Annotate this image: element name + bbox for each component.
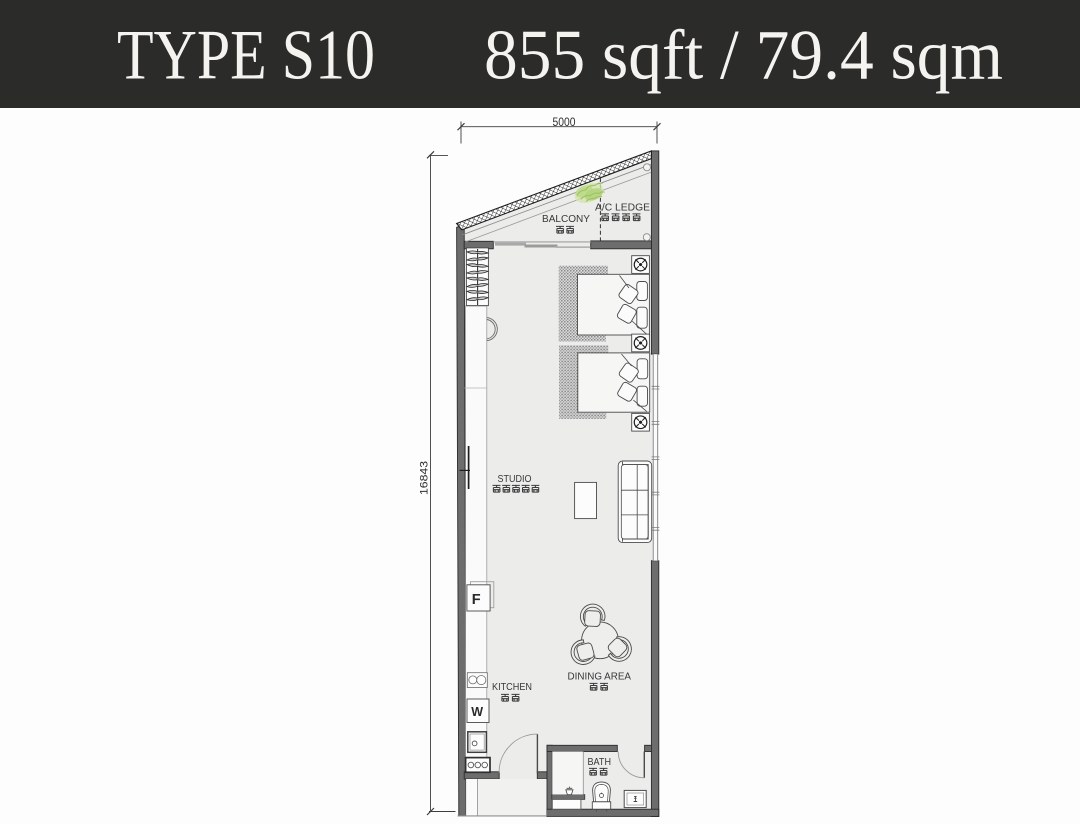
svg-text:16843: 16843	[419, 461, 431, 495]
svg-text:STUDIO: STUDIO	[498, 473, 532, 485]
svg-text:BALCONY: BALCONY	[542, 213, 590, 225]
svg-text:F: F	[472, 592, 481, 608]
svg-text:5000: 5000	[553, 117, 576, 129]
svg-text:A/C LEDGE: A/C LEDGE	[595, 202, 650, 214]
svg-text:855 sqft / 79.4 sqm: 855 sqft / 79.4 sqm	[484, 17, 1003, 95]
svg-text:W: W	[471, 705, 483, 719]
svg-text:DINING AREA: DINING AREA	[568, 671, 632, 683]
svg-text:KITCHEN: KITCHEN	[492, 681, 532, 693]
svg-text:TYPE S10: TYPE S10	[117, 17, 375, 95]
svg-text:BATH: BATH	[588, 756, 612, 768]
